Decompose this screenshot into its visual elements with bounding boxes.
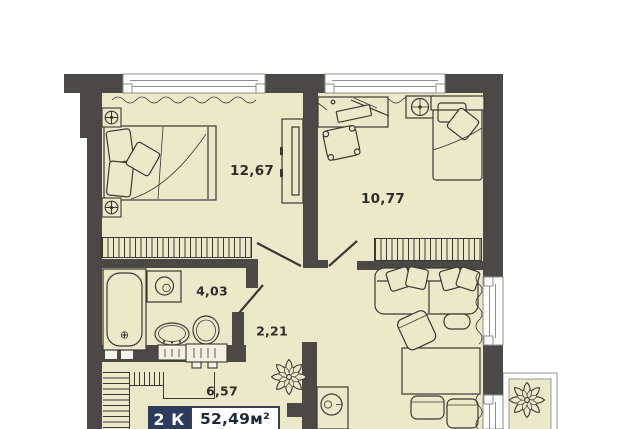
sofa-icon — [375, 266, 481, 314]
bedside-lamp-icon — [102, 108, 121, 127]
total-area-badge: 52,49м² — [190, 406, 280, 429]
kitchen-sink-icon — [317, 387, 348, 429]
window-bedroom-2 — [325, 74, 445, 93]
sink-icon — [155, 323, 189, 360]
wall-segment — [102, 259, 257, 268]
floor-plan: 12,67 10,77 4,03 2,21 6,57 2 К 52,49м² — [0, 0, 640, 429]
single-bed-icon — [431, 96, 484, 180]
dining-table-icon — [402, 348, 480, 394]
wall-segment — [265, 74, 325, 93]
room-area-label-corridor: 2,21 — [256, 324, 288, 339]
washing-machine-icon — [147, 271, 181, 302]
chair-icon — [444, 314, 470, 329]
wardrobe-icon — [280, 119, 303, 203]
plant-icon — [272, 360, 307, 395]
hallway-closet-icon — [129, 372, 163, 386]
rooms-count-badge: 2 К — [148, 406, 190, 429]
chair-icon — [447, 399, 478, 428]
ceiling-light-icon — [406, 96, 434, 118]
wall-segment — [303, 91, 318, 262]
wall-segment — [246, 259, 258, 288]
bedside-lamp-icon — [102, 198, 121, 217]
wall-shaft-notch — [105, 350, 117, 359]
room-area-label-bedroom-1: 12,67 — [230, 163, 274, 179]
room-area-label-bedroom-2: 10,77 — [361, 191, 405, 207]
closet-hatch-icon — [374, 238, 482, 261]
wall-segment — [302, 342, 317, 429]
wall-segment — [80, 74, 102, 138]
plant-icon — [510, 383, 545, 418]
window-bedroom-1 — [123, 74, 265, 93]
bathtub-icon — [103, 269, 146, 350]
hallway-closet-icon — [103, 372, 130, 429]
chair-icon — [322, 125, 361, 161]
wall-segment — [287, 403, 302, 417]
desk-icon — [318, 97, 389, 127]
room-area-label-hallway: 6,57 — [206, 384, 238, 399]
wall-segment — [483, 345, 503, 395]
window-living-upper — [483, 277, 503, 345]
chair-icon — [411, 396, 444, 419]
wall-segment — [87, 138, 102, 429]
room-area-label-bathroom: 4,03 — [196, 284, 228, 299]
closet-hatch-icon — [101, 237, 252, 258]
window-living-lower — [483, 395, 503, 429]
apartment-type-badge[interactable]: 2 К 52,49м² — [148, 406, 280, 429]
floor-plan-drawing — [0, 0, 640, 429]
wall-shaft-notch — [121, 350, 133, 359]
double-bed-icon — [104, 126, 216, 200]
wall-segment — [303, 260, 328, 268]
wall-segment — [483, 74, 503, 277]
